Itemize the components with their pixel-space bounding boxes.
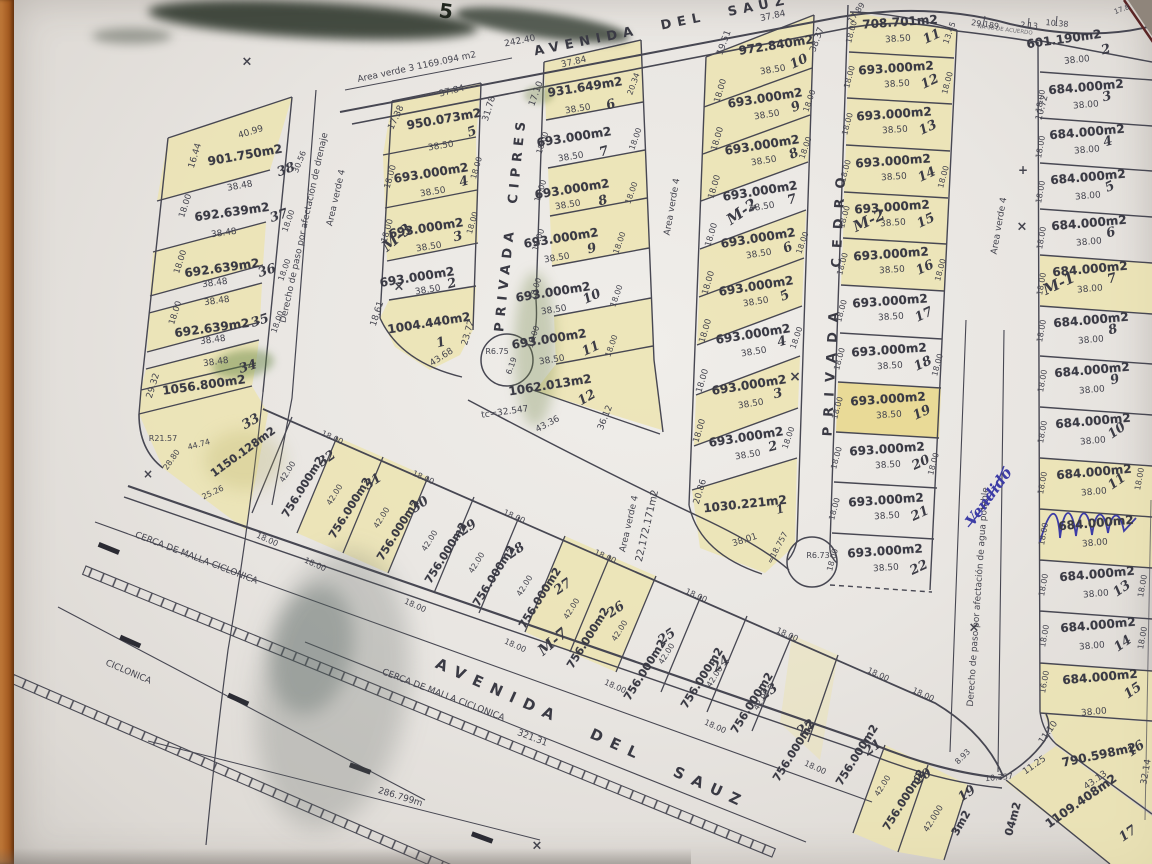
- edge-length: 18.00: [1035, 180, 1047, 204]
- edge-length: 40.99: [237, 125, 264, 141]
- edge-length: 18.00: [841, 112, 855, 136]
- edge-length: 19.51: [716, 29, 733, 56]
- edge-length: 36.12: [597, 404, 615, 431]
- lot-area: 693.000m2: [851, 341, 927, 358]
- edge-length: 38.00: [1076, 237, 1102, 248]
- lot-number: 19: [911, 403, 933, 422]
- lot-area: 684.000m2: [1060, 616, 1136, 635]
- lot-area: 693.000m2: [847, 542, 923, 559]
- edge-length: 18.00: [843, 65, 857, 89]
- edge-length: 38.50: [738, 399, 765, 412]
- edge-length: 17.8: [1113, 4, 1130, 16]
- edge-length: 38.50: [754, 110, 781, 123]
- edge-length: 18.00: [703, 719, 727, 736]
- edge-length: 43.68: [429, 347, 456, 369]
- edge-length: 18.00: [803, 760, 827, 777]
- lot-area: 692.639m2: [194, 201, 270, 223]
- lot-number: 19: [956, 783, 978, 804]
- edge-length: 18.00: [503, 638, 527, 655]
- x-mark: ×: [789, 370, 801, 384]
- edge-length: 18.00: [1039, 624, 1051, 648]
- lot-area: 684.000m2: [1048, 78, 1124, 97]
- edge-length: 18.00: [502, 509, 526, 526]
- edge-length: 38.37: [809, 26, 826, 53]
- edge-length: 20.34: [626, 72, 641, 96]
- lot-number: 2: [767, 440, 779, 455]
- edge-length: 18.00: [698, 318, 713, 344]
- edge-length: 38.50: [541, 305, 568, 318]
- lot-area: 693.000m2: [848, 491, 924, 508]
- edge-length: 42.00: [516, 574, 535, 598]
- lot-number: 10: [788, 52, 810, 71]
- edge-length: 18.00: [470, 156, 484, 180]
- edge-length: 38.48: [204, 296, 231, 308]
- edge-length: 18.00: [684, 588, 708, 605]
- lot-number: 8: [787, 146, 801, 162]
- lot-number: 4: [776, 335, 788, 350]
- lot-area: 901.750m2: [207, 143, 283, 168]
- edge-length: 18.00: [707, 174, 722, 200]
- green-area-4: Area verde 4: [991, 197, 1010, 256]
- edge-length: 42.00: [279, 460, 298, 484]
- edge-length: 38.00: [1082, 538, 1108, 549]
- lot-area: 693.000m2: [850, 390, 926, 407]
- lot-area: 693.000m2: [855, 152, 931, 169]
- lot-number: 36: [256, 262, 277, 280]
- fence-label: CERCA DE MALLA CICLONICA: [133, 531, 258, 586]
- lot-number: 15: [915, 211, 937, 230]
- edge-length: 18.00: [798, 136, 813, 160]
- edge-length: 38.50: [878, 313, 904, 324]
- edge-length: 18.00: [624, 181, 639, 205]
- lot-number: 17: [913, 305, 935, 324]
- edge-length: 38.01: [731, 533, 758, 550]
- edge-length: 8.93: [954, 748, 972, 766]
- edge-length: 18.00: [701, 270, 716, 296]
- lot-number: 5: [466, 124, 479, 139]
- edge-length: 18.00: [628, 127, 643, 151]
- edge-length: 38.50: [882, 126, 908, 137]
- lot-number: 14: [916, 165, 938, 184]
- edge-length: 18.00: [603, 679, 627, 696]
- edge-length: 11.10: [1038, 720, 1060, 746]
- edge-length: 38.50: [735, 450, 762, 463]
- edge-length: 38.48: [203, 357, 230, 369]
- edge-length: 38.50: [880, 219, 906, 230]
- edge-length: 44.74: [187, 438, 211, 452]
- edge-length: 18.00: [911, 687, 935, 704]
- edge-length: 18.00: [1035, 135, 1047, 159]
- edge-length: 38.50: [555, 200, 582, 213]
- edge-length: 38.00: [1079, 641, 1105, 652]
- edge-length: 31.78: [482, 95, 498, 122]
- lot-number: 9: [789, 99, 803, 115]
- green-area-4: Area verde 4: [326, 169, 348, 227]
- edge-length: 38.50: [751, 156, 778, 169]
- lot-number: 15: [1122, 680, 1144, 701]
- edge-length: 18.00: [255, 532, 279, 549]
- lot-number: 17: [1117, 823, 1139, 844]
- edge-length: 18.00: [927, 452, 941, 476]
- edge-length: 38.50: [416, 242, 443, 255]
- edge-length: 10.357: [985, 773, 1014, 783]
- lot-number: 8: [597, 194, 609, 209]
- edge-length: 13.45: [942, 21, 957, 45]
- block-label-m7: M-7: [535, 626, 570, 659]
- lot-area: 708.701m2: [862, 13, 938, 30]
- edge-length: 18.00: [303, 557, 327, 574]
- edge-length: 38.00: [1064, 55, 1091, 67]
- edge-length: 38.00: [1083, 589, 1109, 600]
- lot-area: 693.000m2: [515, 280, 591, 304]
- edge-length: 42.00: [874, 774, 893, 798]
- handwriting-5: 5: [438, 0, 455, 22]
- lot-area: 1109.408m2: [1043, 772, 1119, 830]
- green-area-3-label: Area verde 3 1169.094 m2: [357, 51, 477, 85]
- edge-length: 38.50: [879, 266, 905, 277]
- lot-area: 684.000m2: [1062, 668, 1138, 687]
- plat-map-paper: AVENIDA DEL SAUZ242.40Area verde 3 1169.…: [14, 0, 1152, 864]
- lot-number: 11: [921, 27, 943, 46]
- edge-length: 18.00: [1037, 471, 1049, 495]
- edge-length: 11.25: [1022, 755, 1048, 777]
- lot-number: 5: [778, 288, 792, 304]
- lot-area: 756.000m2: [517, 566, 563, 631]
- lot-area: 692.639m2: [184, 257, 260, 279]
- edge-length: 38.50: [881, 173, 907, 184]
- edge-length: 10.38: [1045, 19, 1069, 29]
- edge-length: 38.00: [1080, 436, 1106, 447]
- lot-number: 12: [919, 72, 941, 91]
- edge-length: 38.48: [227, 180, 254, 193]
- edge-length: 38.50: [874, 512, 900, 523]
- edge-length: 17.10: [528, 80, 545, 107]
- edge-length: 25.26: [201, 485, 225, 502]
- edge-length: 38.50: [420, 187, 447, 200]
- edge-length: 18.00: [466, 211, 480, 235]
- lot-number: 3: [772, 387, 784, 402]
- lot-area: 684.000m2: [1050, 168, 1126, 187]
- edge-length: 18.00: [934, 258, 948, 282]
- edge-length: 2.13: [1020, 21, 1038, 31]
- edge-length: 28.80: [162, 448, 182, 471]
- lot-number: 6: [781, 240, 795, 256]
- paper-edge-shadow: [0, 848, 691, 864]
- edge-length: =18.757: [766, 531, 789, 565]
- edge-length: 18.00: [593, 549, 617, 566]
- lot-area: 693.000m2: [854, 198, 930, 215]
- edge-length: 42.00: [468, 551, 487, 575]
- edge-length: 16.00: [1039, 670, 1051, 694]
- edge-length: 18.00: [845, 20, 859, 44]
- lot-number: 2: [446, 277, 458, 292]
- lot-number: 14: [1112, 633, 1134, 654]
- edge-length: 38.50: [749, 202, 776, 215]
- edge-length: 38.50: [558, 152, 585, 165]
- edge-length: 38.00: [1074, 145, 1100, 156]
- lot-number: 8: [1107, 323, 1119, 338]
- lot-number: 13: [917, 118, 939, 137]
- edge-length: 18.00: [604, 334, 619, 358]
- edge-length: 32.14: [1140, 759, 1152, 786]
- edge-length: 38.00: [1073, 100, 1099, 111]
- edge-length: 18.00: [695, 368, 710, 394]
- edge-length: 16.44: [188, 142, 204, 169]
- edge-length: 18.00: [830, 446, 844, 470]
- green-area-4: Area verde 4: [664, 178, 683, 237]
- edge-length: 242.40: [504, 35, 537, 50]
- edge-length: 18.00: [937, 165, 951, 189]
- edge-length: 38.00: [1081, 707, 1107, 718]
- edge-length: 18.00: [320, 430, 344, 447]
- edge-length: 18.00: [612, 231, 627, 255]
- edge-length: 18.00: [941, 71, 955, 95]
- lot-number: 16: [914, 258, 936, 277]
- edge-length: 43.36: [535, 415, 562, 435]
- lot-number: 9: [586, 242, 598, 257]
- edge-length: R6.73: [806, 552, 829, 560]
- edge-length: 42.00: [611, 619, 630, 643]
- lot-area: 693.000m2: [852, 292, 928, 309]
- edge-length: 18.00: [168, 300, 184, 326]
- lot-area: 693.000m2: [379, 265, 455, 289]
- edge-length: 18.00: [704, 222, 719, 248]
- lot-number: 2: [1100, 43, 1112, 58]
- edge-length: 38.48: [211, 228, 238, 240]
- lot-number: 7: [1106, 272, 1118, 287]
- lot-number: 33: [240, 412, 262, 432]
- lot-area: 756.000m2: [729, 671, 775, 736]
- edge-length: 18.00: [1037, 369, 1049, 393]
- lot-area: 693.000m2: [856, 105, 932, 122]
- edge-length: 18.61: [370, 300, 387, 327]
- edge-length: 18.00: [839, 159, 853, 183]
- edge-length: 18.00: [931, 353, 945, 377]
- lot-number: 13: [1111, 578, 1133, 599]
- edge-length: 321.31: [516, 729, 549, 749]
- lot-area-partial: 04m2: [1003, 801, 1023, 837]
- lot-area: 684.000m2: [1058, 514, 1134, 533]
- edge-length: 38.48: [202, 278, 229, 290]
- edge-length: 38.50: [884, 80, 910, 91]
- lot-area: 684.000m2: [1051, 214, 1127, 233]
- x-mark: ×: [242, 56, 253, 69]
- edge-length: 38.00: [1077, 284, 1103, 295]
- fence-label: CICLONICA: [104, 659, 152, 686]
- edge-length: 38.00: [1079, 385, 1105, 396]
- edge-length: 38.50: [746, 249, 773, 262]
- lot-area: 1004.440m2: [387, 311, 472, 336]
- lot-area: 756.000m2: [622, 638, 668, 703]
- x-mark: ×: [143, 468, 153, 480]
- edge-length: 6.19: [505, 356, 519, 375]
- edge-length: 18.00: [411, 470, 435, 487]
- edge-length: 38.50: [428, 141, 455, 154]
- map-labels-layer: AVENIDA DEL SAUZ242.40Area verde 3 1169.…: [0, 0, 1152, 864]
- edge-length: 38.00: [1075, 191, 1101, 202]
- edge-length: 38.50: [873, 564, 899, 575]
- lot-area: 684.000m2: [1049, 123, 1125, 142]
- lot-area-partial: 3m2: [950, 809, 973, 838]
- edge-length: 38.50: [415, 285, 442, 298]
- lot-number: 9: [1109, 373, 1121, 388]
- edge-length: 18.00: [1038, 522, 1050, 546]
- edge-length: 18.00: [1137, 626, 1149, 650]
- edge-length: 30.56: [292, 150, 308, 174]
- lot-area: 693.000m2: [853, 245, 929, 262]
- edge-length: 18.00: [789, 326, 804, 350]
- edge-length: R21.57: [149, 435, 177, 443]
- edge-length: 38.50: [760, 65, 787, 78]
- edge-length: 18.00: [1036, 226, 1048, 250]
- x-mark: ×: [969, 622, 980, 635]
- lot-area: 1056.800m2: [162, 373, 247, 397]
- edge-length: 38.00: [1078, 335, 1104, 346]
- edge-length: 18.00: [866, 667, 890, 684]
- lot-area: 693.000m2: [393, 161, 469, 185]
- edge-length: 18.00: [609, 284, 624, 308]
- edge-length: 38.48: [200, 335, 227, 347]
- edge-length: 38.00: [1081, 487, 1107, 498]
- edge-length: 38.50: [544, 253, 571, 266]
- edge-length: 37.84: [560, 56, 587, 71]
- edge-length: 18.00: [403, 598, 427, 615]
- edge-length: 42.00: [421, 529, 440, 553]
- edge-length: 37.84: [438, 85, 465, 100]
- edge-length: R6.75: [485, 348, 508, 356]
- edge-length: 42.00: [326, 483, 345, 507]
- lot-number: 12: [576, 388, 598, 408]
- edge-length: 42.00: [563, 597, 582, 621]
- wood-table-edge: [0, 0, 14, 864]
- lot-area: 693.000m2: [511, 327, 587, 351]
- edge-length: 42.000: [923, 804, 946, 834]
- lot-number: 3: [452, 230, 464, 245]
- edge-length: 286.799m: [377, 787, 424, 809]
- lot-area: 931.649m2: [547, 75, 623, 99]
- edge-length: 42.00: [373, 506, 392, 530]
- plus-mark: +: [1018, 164, 1028, 176]
- edge-length: 18.00: [178, 193, 194, 219]
- handwriting-vendido: Vendido: [963, 465, 1015, 528]
- edge-length: 38.50: [885, 35, 911, 46]
- edge-length: 18.00: [775, 627, 799, 644]
- edge-length: 18.00: [692, 418, 707, 444]
- lot-area: 684.000m2: [1053, 311, 1129, 330]
- edge-length: 38.50: [565, 104, 592, 117]
- lot-number: 7: [598, 145, 610, 160]
- edge-length: 17.38: [387, 104, 406, 131]
- edge-length: 38.50: [876, 411, 902, 422]
- lot-area: 684.000m2: [1052, 260, 1128, 279]
- edge-length: 29.32: [146, 372, 162, 399]
- edge-length: 18.00: [1134, 467, 1146, 491]
- photo-of-plat-map: AVENIDA DEL SAUZ242.40Area verde 3 1169.…: [0, 0, 1152, 864]
- edge-length: 18.00: [795, 231, 810, 255]
- lot-number: 6: [605, 97, 618, 112]
- edge-length: 18.00: [1036, 319, 1048, 343]
- edge-length: 18.00: [1038, 573, 1050, 597]
- edge-length: 38.50: [743, 297, 770, 310]
- lot-number: 35: [249, 312, 270, 330]
- lot-area: 693.000m2: [858, 59, 934, 76]
- edge-length: 38.50: [539, 355, 566, 368]
- lot-number: 11: [580, 339, 602, 358]
- edge-length: 29.189: [971, 19, 1000, 31]
- edge-length: 38.50: [875, 461, 901, 472]
- lot-area: 601.190m2: [1026, 28, 1102, 50]
- edge-length: tc=32.547: [481, 405, 529, 421]
- lot-number: 22: [908, 558, 930, 577]
- x-mark: ×: [1017, 221, 1028, 234]
- lot-number: 21: [909, 504, 931, 523]
- lot-number: 6: [1105, 226, 1117, 241]
- lot-area: 1150.128m2: [209, 425, 278, 479]
- edge-length: 18.00: [1137, 574, 1149, 598]
- edge-length: 38.50: [741, 347, 768, 360]
- lot-number: 7: [786, 193, 798, 208]
- edge-length: 18.00: [828, 497, 842, 521]
- lot-area: 693.000m2: [849, 440, 925, 457]
- edge-length: 18.00: [802, 89, 817, 113]
- edge-length: 18.00: [1037, 420, 1049, 444]
- edge-length: 38.50: [877, 362, 903, 373]
